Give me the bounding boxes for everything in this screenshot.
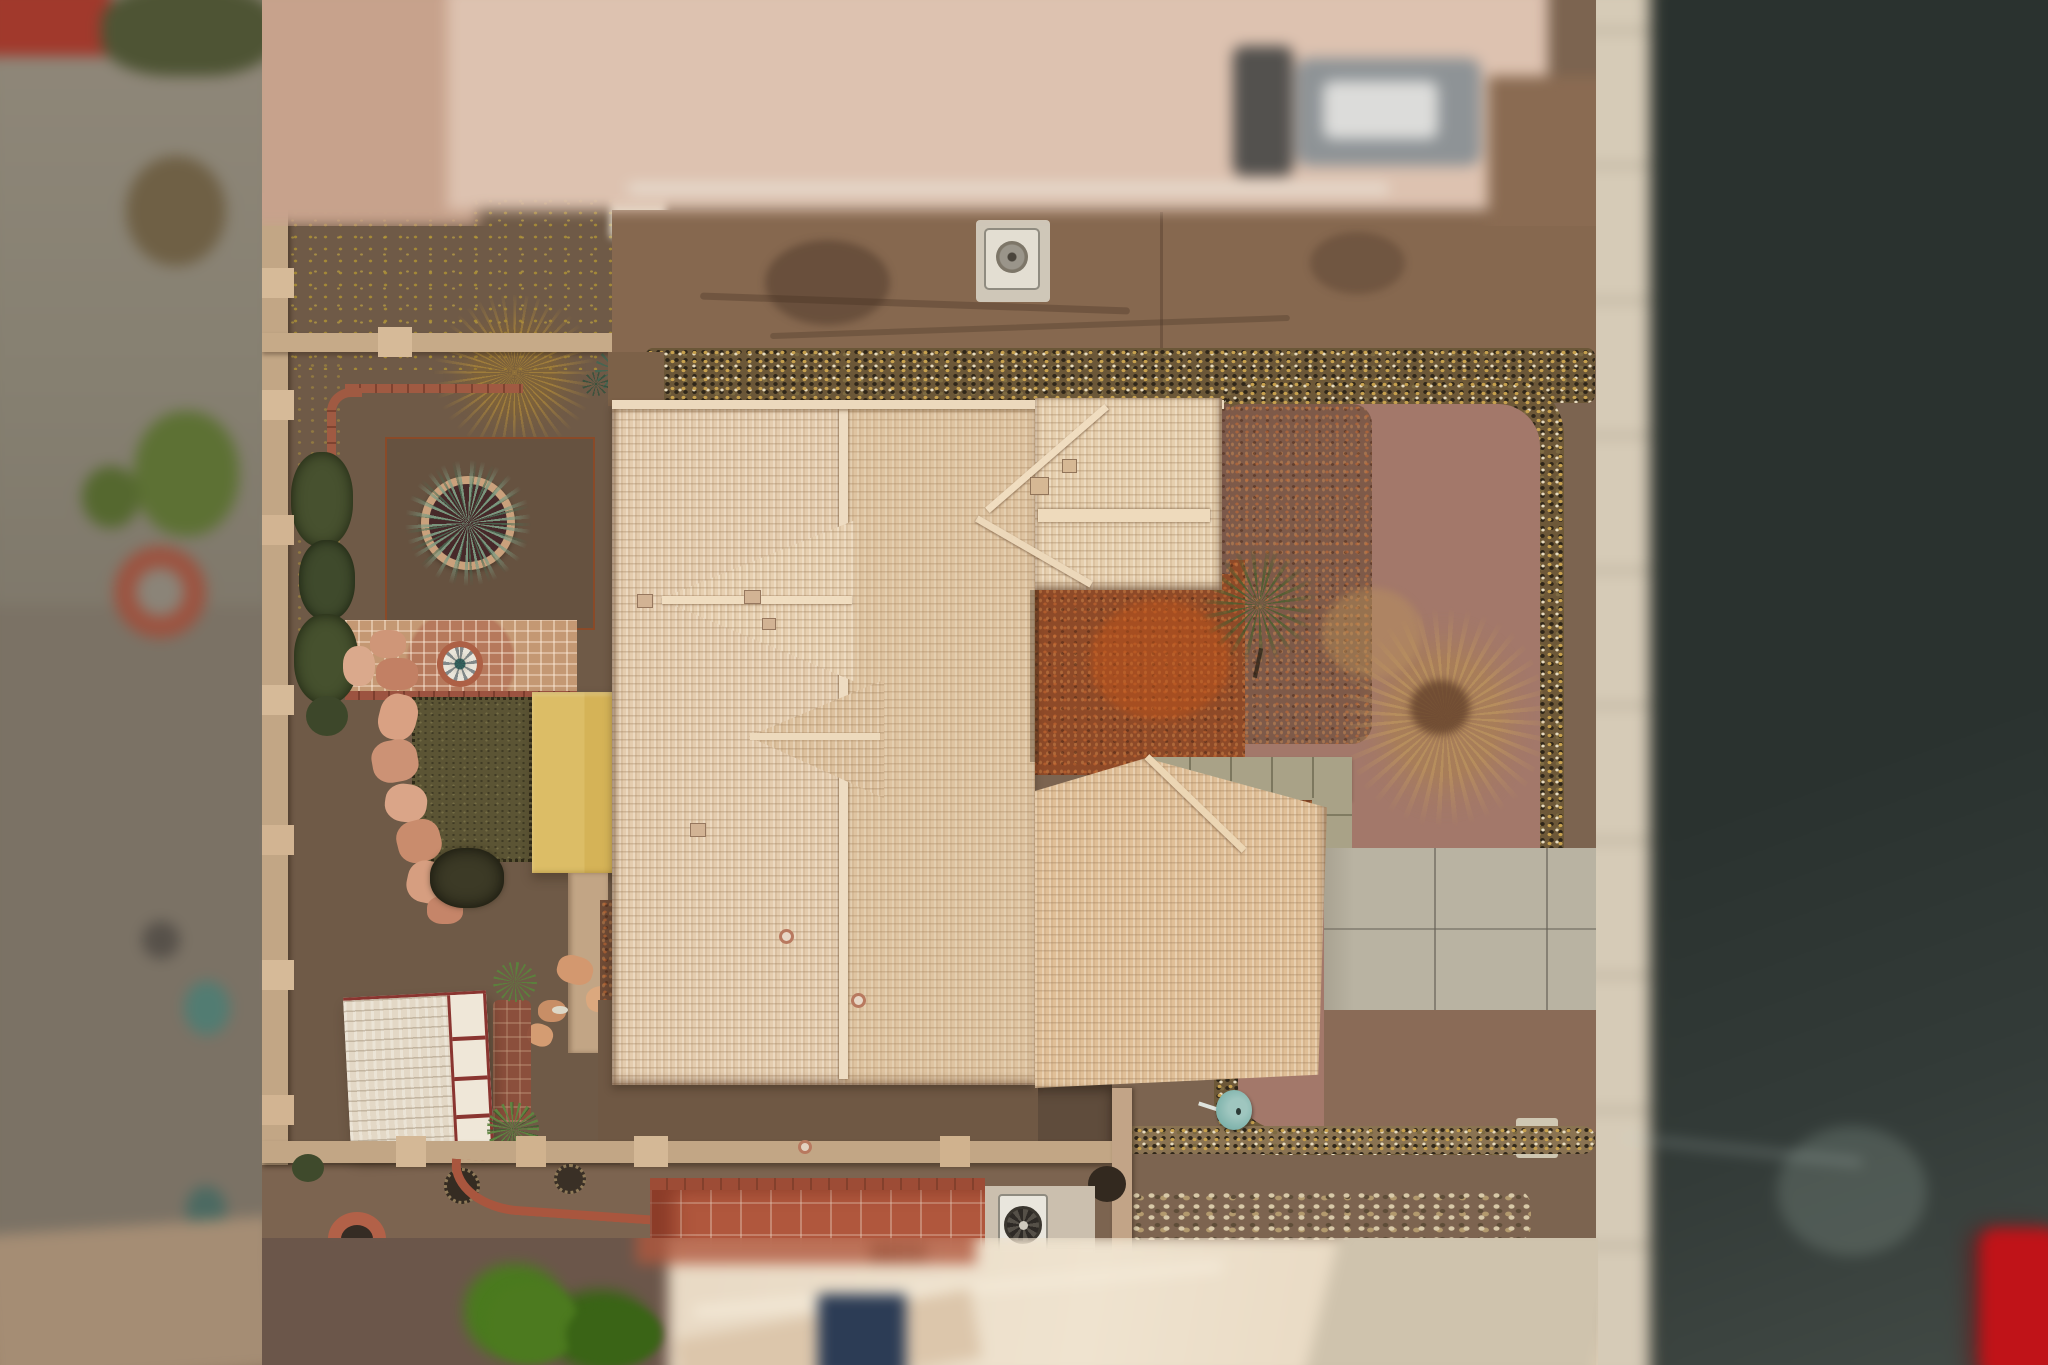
debris — [552, 1006, 568, 1014]
brick-curve-south — [448, 1158, 669, 1225]
terracotta-brick-border — [650, 1178, 985, 1190]
neighbor-dark-dot — [142, 921, 180, 959]
apron-driveway — [1304, 1238, 1598, 1365]
agave-plant-icon — [404, 459, 532, 587]
top-car-roof — [1323, 81, 1438, 139]
flagstone — [343, 646, 375, 686]
shed-trim-stripe — [456, 1113, 489, 1119]
roof-vent — [690, 823, 706, 837]
neighbor-top-region — [262, 0, 1660, 226]
neighbor-tan-apron — [0, 1216, 262, 1365]
brick-edging — [345, 384, 523, 393]
fountain-basin — [443, 647, 477, 681]
roof-vent — [762, 618, 776, 630]
dirt-below-pad — [1324, 1010, 1602, 1132]
fence-south — [262, 1141, 1114, 1163]
shed-trim-stripe — [454, 1075, 487, 1081]
dead-shrub-backyard — [432, 295, 597, 450]
front-house-region — [262, 1238, 1598, 1365]
plant-row-4 — [306, 696, 348, 736]
curb-shade — [1646, 0, 1660, 1365]
navy-panel — [818, 1294, 906, 1365]
dead-bush-core — [1410, 680, 1470, 735]
terracotta-fade — [636, 1238, 976, 1264]
dirt-stain — [765, 240, 890, 325]
shed-trim-stripe — [452, 1035, 485, 1041]
top-dark-gap — [1233, 46, 1293, 176]
gable-lower-ridge — [750, 733, 880, 740]
aerial-photo-stage — [0, 0, 2048, 1365]
neighbor-trees — [101, 0, 262, 76]
top-roof-left — [262, 0, 478, 226]
neighbor-left-region — [0, 0, 262, 1365]
shed-shingles — [343, 995, 455, 1149]
driveway-pad — [1324, 848, 1602, 1012]
road-region — [1596, 0, 2048, 1365]
ac-fan-north-icon — [996, 241, 1028, 273]
top-roof-gutter — [628, 184, 1388, 193]
dark-shrub — [430, 848, 504, 908]
satellite-dish-icon — [1216, 1090, 1252, 1130]
wing-ne-ridge-cap — [1038, 509, 1210, 522]
roof-vent — [637, 594, 653, 608]
flagstone — [376, 658, 418, 690]
fence-post — [634, 1136, 668, 1167]
neighbor-bush — [134, 411, 239, 536]
neighbor-red-roof — [0, 0, 111, 56]
roof-vent-pipe — [798, 1140, 812, 1154]
plant-row-1 — [291, 452, 353, 547]
utility-line — [1160, 212, 1163, 354]
plant-row-2 — [299, 540, 355, 620]
fence-post — [378, 327, 412, 357]
neighbor-street — [0, 606, 262, 1246]
roof-vent — [1030, 477, 1049, 495]
yucca-icon — [493, 962, 537, 1002]
roof-vent — [1062, 459, 1077, 473]
red-car — [1980, 1228, 2048, 1365]
dirt-stain — [1310, 232, 1405, 294]
roof-vent-pipe — [851, 993, 866, 1008]
neighbor-bush — [82, 466, 140, 528]
road-light-blob — [1777, 1126, 1927, 1256]
ac-fan-hub — [1019, 1221, 1028, 1230]
dry-grass-patch — [1322, 588, 1422, 678]
fence-north — [262, 333, 652, 352]
flagstone — [370, 630, 406, 658]
fence-post — [940, 1136, 970, 1167]
neighbor-firepit-blob — [114, 546, 206, 638]
neighbor-teal-object — [184, 981, 230, 1035]
shed-roof — [343, 990, 494, 1152]
roof-recess-shadow — [1030, 590, 1039, 762]
neighbor-planter-blob — [126, 156, 226, 266]
wing-roof-ne — [1035, 398, 1222, 590]
roof-vent-pipe — [779, 929, 794, 944]
green-bush-sharp — [566, 1304, 662, 1365]
shrub-small-dark — [292, 1154, 324, 1182]
fence-post — [396, 1136, 426, 1167]
agave-small2-icon — [582, 372, 610, 396]
dirt-wedge — [608, 352, 664, 406]
gravel-row-2 — [1129, 1190, 1531, 1242]
wing-roof-se — [1035, 758, 1327, 1088]
green-bush-sharp — [486, 1282, 578, 1364]
gravel-row-1 — [1123, 1126, 1595, 1154]
roof-vent — [744, 590, 761, 604]
dish-feed-dot — [1236, 1108, 1241, 1115]
